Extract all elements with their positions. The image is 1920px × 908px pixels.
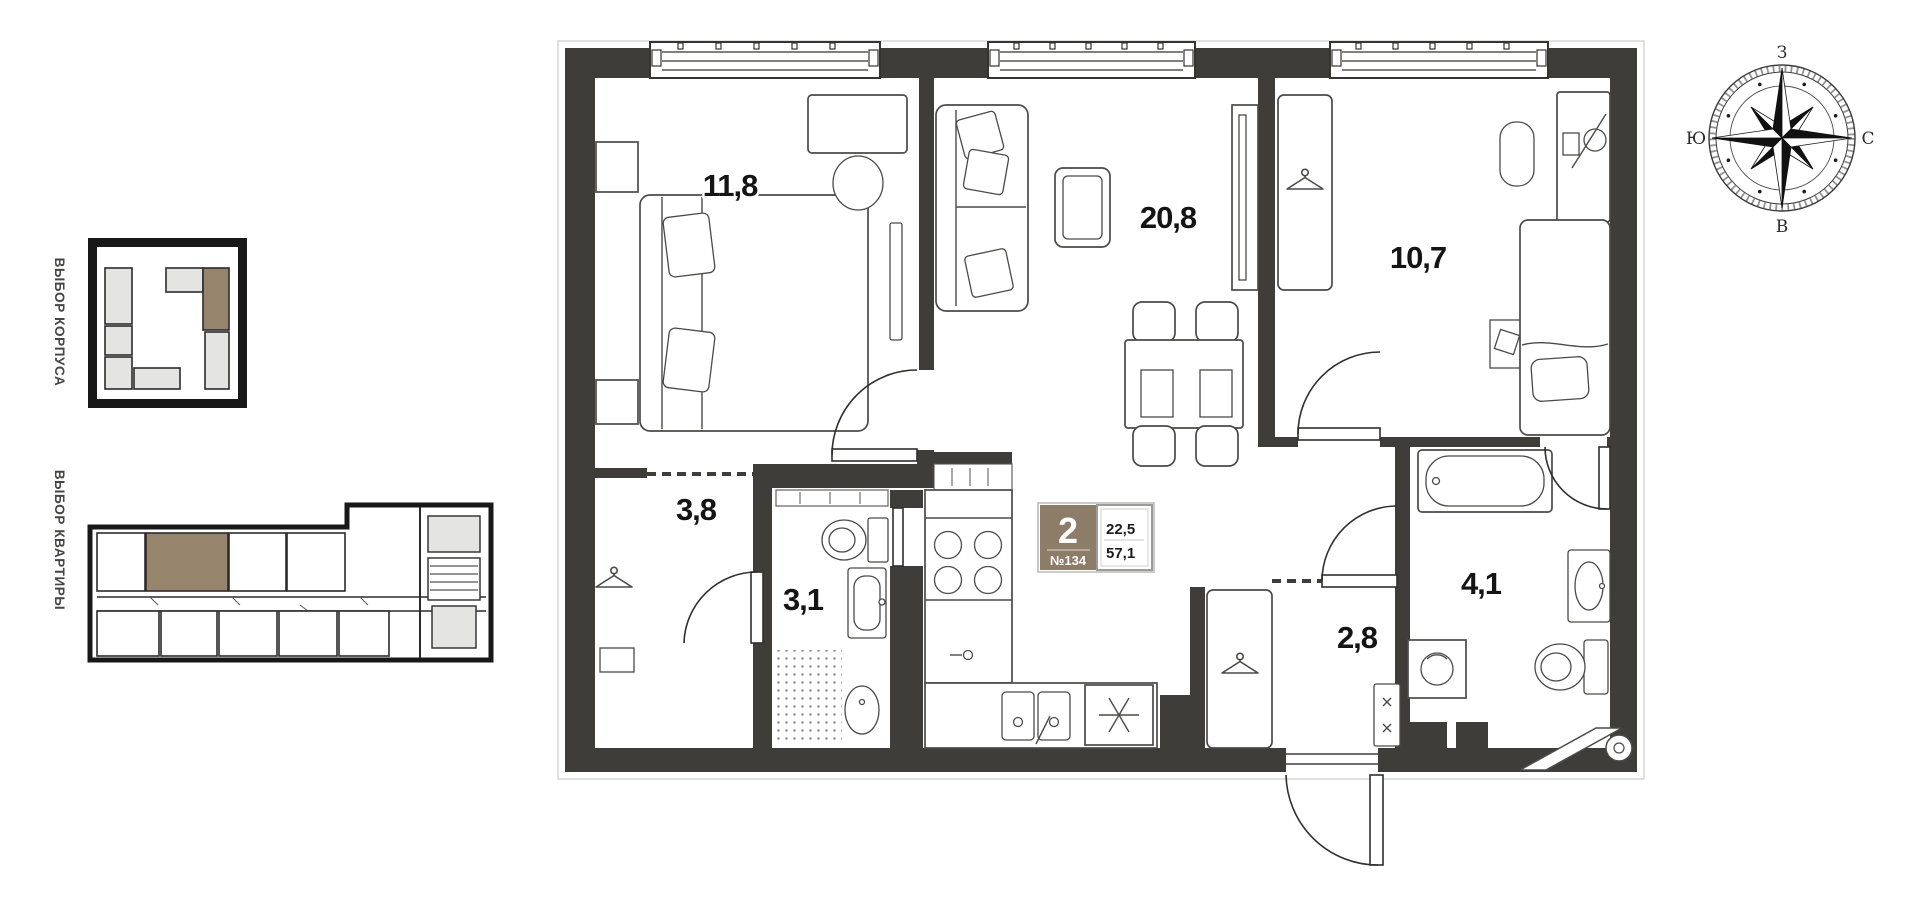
- door-bedroom-second: [1298, 352, 1380, 440]
- compass-east-label: В: [1776, 217, 1789, 237]
- selected-building-block[interactable]: [203, 268, 229, 330]
- bathtub: [1418, 450, 1552, 512]
- main-floorplan: 11,8 20,8 10,7 3,8 3,1 2,8 4,1 2 №134 22…: [558, 41, 1644, 865]
- floorplan-canvas: ВЫБОР КОРПУСА ВЫБОР КВАРТИРЫ: [0, 0, 1920, 908]
- tv-panel: [890, 223, 902, 340]
- selected-apartment-cell[interactable]: [146, 533, 228, 591]
- wardrobe-room: [596, 567, 634, 672]
- window: [988, 42, 1195, 78]
- building-block[interactable]: [105, 357, 132, 389]
- badge-rooms-count: 2: [1058, 510, 1078, 551]
- hall-closet: [1207, 590, 1272, 748]
- chair: [1500, 122, 1534, 186]
- windows: [650, 42, 1548, 78]
- door-bathroom-main: [1545, 447, 1610, 509]
- window: [1330, 42, 1548, 78]
- double-bed: [640, 195, 868, 431]
- pillow: [663, 212, 716, 277]
- shoe-cabinet: [1374, 684, 1400, 746]
- compass-north-label: С: [1861, 129, 1874, 149]
- hallway: [1207, 590, 1400, 748]
- apartment-minimap[interactable]: ВЫБОР КВАРТИРЫ: [52, 470, 491, 660]
- washbasin: [1568, 550, 1610, 622]
- compass-south-label: Ю: [1686, 129, 1706, 149]
- chair: [1196, 302, 1238, 342]
- floorplan-page: ВЫБОР КОРПУСА ВЫБОР КВАРТИРЫ: [0, 0, 1920, 908]
- unit-cell[interactable]: [279, 611, 337, 656]
- window: [650, 42, 880, 78]
- shower-drain-icon: [845, 686, 879, 734]
- room-label-bathroom-guest: 3,1: [783, 582, 824, 617]
- building-block[interactable]: [105, 326, 132, 355]
- door-wardrobe: [684, 572, 763, 643]
- room-label-wardrobe: 3,8: [676, 492, 717, 527]
- building-block[interactable]: [134, 368, 180, 389]
- unit-cell[interactable]: [287, 533, 345, 591]
- unit-cell[interactable]: [219, 611, 277, 656]
- badge-area-living: 22,5: [1106, 521, 1135, 538]
- corpus-minimap[interactable]: ВЫБОР КОРПУСА: [52, 243, 243, 404]
- tall-cabinet: [1232, 105, 1258, 290]
- column-symbol: [1606, 735, 1632, 761]
- unit-cell[interactable]: [229, 533, 286, 591]
- nightstand: [596, 380, 638, 424]
- drawer-box: [600, 648, 634, 672]
- shower-floor: [776, 650, 842, 740]
- bedroom-main: [596, 95, 907, 431]
- door-bathroom-guest: [893, 508, 903, 566]
- toilet: [1535, 640, 1608, 694]
- freezer-asterisk-icon: [1085, 685, 1153, 745]
- bathroom-guest: [776, 518, 888, 740]
- apartment-badge[interactable]: 2 №134 22,5 57,1: [1038, 503, 1154, 572]
- bathroom-main: [1408, 450, 1610, 698]
- tv-unit: [1055, 168, 1110, 247]
- room-label-hallway: 2,8: [1337, 620, 1378, 655]
- apartment-minimap-label: ВЫБОР КВАРТИРЫ: [52, 470, 67, 610]
- nightstand: [596, 142, 638, 192]
- desk: [808, 95, 907, 153]
- unit-cell[interactable]: [161, 611, 217, 656]
- pillow: [964, 248, 1014, 298]
- chair: [1133, 302, 1175, 342]
- room-label-living: 20,8: [1140, 200, 1197, 235]
- corpus-minimap-label: ВЫБОР КОРПУСА: [52, 258, 67, 387]
- hanger-icon: [596, 567, 632, 587]
- chair: [1133, 426, 1175, 466]
- pillow: [963, 149, 1009, 195]
- washing-machine: [1408, 640, 1466, 698]
- sofa: [936, 105, 1028, 311]
- placemat: [1200, 370, 1232, 417]
- wardrobe-cabinet: [1278, 95, 1332, 290]
- room-label-bathroom-main: 4,1: [1461, 566, 1502, 601]
- pillow: [1531, 356, 1590, 402]
- pillow: [663, 327, 716, 392]
- badge-area-total: 57,1: [1106, 545, 1135, 562]
- building-block[interactable]: [166, 268, 203, 292]
- room-label-bedroom-second: 10,7: [1390, 240, 1446, 275]
- toilet: [822, 518, 888, 562]
- room-label-bedroom-main: 11,8: [703, 168, 758, 203]
- building-block[interactable]: [205, 332, 229, 389]
- washbasin: [848, 568, 886, 638]
- badge-apartment-number: №134: [1050, 553, 1087, 568]
- compass-rose: З Ю С В: [1686, 43, 1875, 237]
- chair: [1196, 426, 1238, 466]
- placemat: [1141, 370, 1173, 417]
- single-bed: [1520, 220, 1610, 435]
- building-block[interactable]: [105, 268, 132, 324]
- unit-cell[interactable]: [97, 533, 145, 591]
- dining-set: [1125, 302, 1243, 466]
- unit-cell[interactable]: [339, 611, 389, 656]
- unit-cell[interactable]: [97, 611, 159, 656]
- chair: [833, 156, 883, 210]
- desk: [1557, 92, 1610, 222]
- door-hallway: [1322, 506, 1397, 587]
- compass-west-label: З: [1777, 43, 1788, 63]
